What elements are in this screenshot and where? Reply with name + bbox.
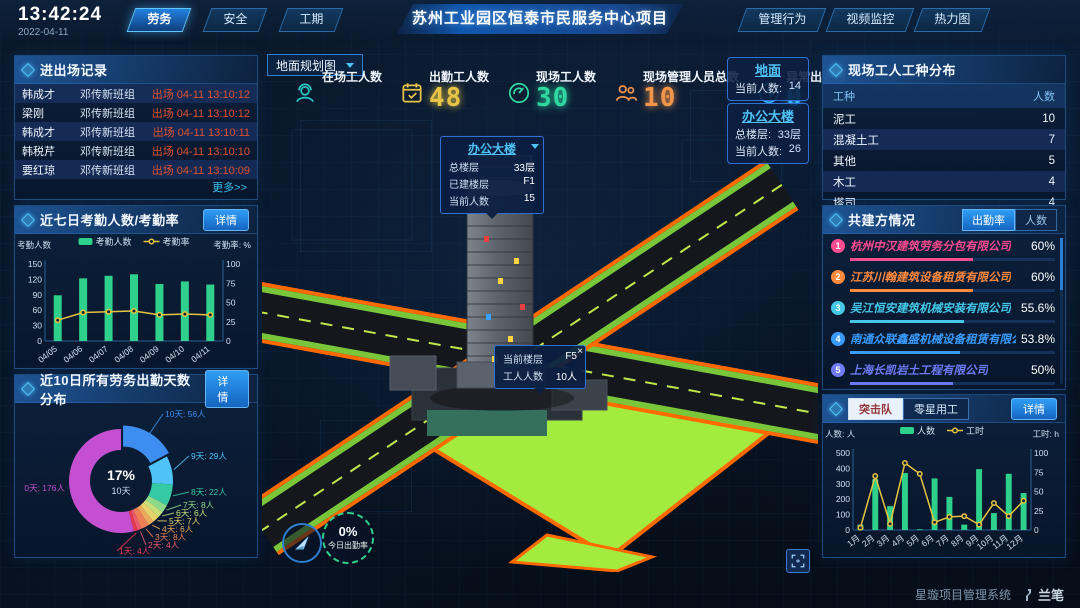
svg-text:9天: 29人: 9天: 29人: [191, 451, 227, 461]
svg-text:工时: h: 工时: h: [1033, 429, 1060, 439]
svg-text:60: 60: [33, 305, 43, 315]
floor-tooltip: × 当前楼层F5 工人人数10人: [494, 345, 586, 389]
panel-diamond-icon: [21, 381, 35, 395]
tab-management-behavior[interactable]: 管理行为: [738, 8, 827, 32]
svg-text:考勤人数: 考勤人数: [96, 236, 132, 247]
attendance-chart-panel: 近七日考勤人数/考勤率 详情 考勤人数考勤率: %考勤人数考勤率03060901…: [14, 205, 258, 369]
ground-info-panel: 地面 当前人数:14: [727, 57, 809, 101]
entry-exit-row: 要红琼邓传新班组出场 04-11 13:10:09: [15, 160, 257, 179]
svg-text:04/08: 04/08: [112, 344, 135, 365]
tab-assault-team[interactable]: 突击队: [848, 398, 903, 420]
svg-text:04/09: 04/09: [138, 344, 161, 365]
svg-text:500: 500: [836, 448, 850, 458]
top-bar: 13:42:24 2022-04-11 劳务 安全 工期 苏州工业园区恒泰市民服…: [0, 0, 1080, 44]
company-row: 4南通众联鑫盛机械设备租赁有限公司53.8%: [823, 327, 1065, 358]
site-3d-view[interactable]: 地面规划图 在场工人数 出勤工人数 48 现场工人数 30 现场管理: [262, 46, 818, 576]
panel-diamond-icon: [21, 212, 35, 226]
ground-link[interactable]: 地面: [735, 60, 801, 79]
svg-text:04/06: 04/06: [61, 344, 84, 365]
panel-diamond-icon: [829, 62, 843, 76]
svg-text:考勤人数: 考勤人数: [17, 240, 52, 250]
svg-text:30: 30: [33, 321, 43, 331]
svg-text:150: 150: [28, 259, 42, 269]
detail-button[interactable]: 详情: [203, 209, 249, 231]
attendance-bar-line-chart: 考勤人数考勤率: %考勤人数考勤率03060901201500255075100…: [15, 234, 253, 366]
company-row: 1杭州中汉建筑劳务分包有限公司60%: [823, 234, 1065, 265]
panel-title: 进出场记录: [40, 60, 108, 79]
table-row: 木工4: [823, 171, 1065, 192]
detail-button[interactable]: 详情: [1011, 398, 1057, 420]
close-icon[interactable]: ×: [577, 347, 583, 357]
office-building-info-panel: 办公大楼 总楼层:33层 当前人数:26: [727, 103, 809, 164]
svg-text:120: 120: [28, 274, 42, 284]
gauge-icon: [506, 80, 532, 106]
svg-text:50: 50: [1034, 487, 1044, 497]
panel-diamond-icon: [829, 212, 843, 226]
calendar-check-icon: [399, 80, 425, 106]
table-row: 泥工10: [823, 108, 1065, 129]
svg-text:04/11: 04/11: [189, 344, 212, 365]
worker-types-panel: 现场工人工种分布 工种 人数 泥工10 混凝土工7 其他5 木工4 塔司4: [822, 55, 1066, 200]
svg-text:10天: 56人: 10天: 56人: [165, 409, 206, 419]
svg-text:考勤率: 考勤率: [163, 236, 190, 247]
office-building-link[interactable]: 办公大楼: [735, 106, 801, 125]
svg-text:考勤率: %: 考勤率: %: [213, 240, 251, 250]
svg-text:25: 25: [1034, 506, 1044, 516]
svg-text:25: 25: [226, 317, 236, 327]
company-row: 3吴江恒安建筑机械安装有限公司55.6%: [823, 296, 1065, 327]
svg-text:10天: 10天: [111, 486, 130, 496]
stat-managers-total: 现场管理人员总数 10: [613, 68, 739, 111]
table-row: 其他5: [823, 150, 1065, 171]
partners-panel: 共建方情况 出勤率 人数 1杭州中汉建筑劳务分包有限公司60% 2江苏川翰建筑设…: [822, 205, 1066, 390]
stat-site-workers: 现场工人数 30: [506, 68, 596, 111]
fullscreen-icon[interactable]: [786, 549, 810, 573]
tab-casual-labor[interactable]: 零星用工: [903, 398, 969, 420]
svg-text:0天: 176人: 0天: 176人: [24, 483, 65, 493]
entry-exit-row: 梁刚邓传新班组出场 04-11 13:10:12: [15, 103, 257, 122]
tab-attendance-rate[interactable]: 出勤率: [962, 209, 1015, 231]
svg-text:100: 100: [226, 259, 240, 269]
panel-diamond-icon: [829, 401, 843, 415]
brand-logo: 兰笔: [1023, 585, 1064, 604]
company-row: 2江苏川翰建筑设备租赁有限公司60%: [823, 265, 1065, 296]
svg-text:04/10: 04/10: [163, 344, 186, 365]
svg-text:人数: 人数: [917, 425, 935, 436]
detail-button[interactable]: 详情: [205, 370, 249, 408]
panel-title: 近10日所有劳务出勤天数分布: [40, 370, 198, 408]
svg-text:400: 400: [836, 463, 850, 473]
attendance-days-donut-chart: 10天: 56人9天: 29人8天: 22人7天: 8人6天: 6人5天: 7人…: [15, 403, 253, 557]
svg-text:04/07: 04/07: [87, 344, 110, 365]
company-list: 1杭州中汉建筑劳务分包有限公司60% 2江苏川翰建筑设备租赁有限公司60% 3吴…: [823, 234, 1065, 390]
stat-onsite-workers: 在场工人数: [292, 68, 382, 111]
entry-exit-row: 韩税芹邓传新班组出场 04-11 13:10:10: [15, 141, 257, 160]
company-row: 6江苏洁治建筑安装工程有限公司35.4%: [823, 389, 1065, 390]
panel-title: 共建方情况: [848, 210, 916, 229]
worker-icon: [292, 80, 318, 106]
tab-safety[interactable]: 安全: [203, 8, 268, 32]
svg-text:50: 50: [226, 298, 236, 308]
svg-text:12月: 12月: [1004, 533, 1024, 552]
svg-text:工时: 工时: [966, 425, 984, 436]
svg-text:200: 200: [836, 494, 850, 504]
svg-text:17%: 17%: [107, 467, 136, 483]
navigation-arrow-icon: [291, 532, 313, 554]
tab-labor[interactable]: 劳务: [127, 8, 192, 32]
tab-schedule[interactable]: 工期: [279, 8, 344, 32]
date-text: 2022-04-11: [18, 27, 102, 38]
svg-text:300: 300: [836, 479, 850, 489]
tab-heatmap[interactable]: 热力图: [914, 8, 991, 32]
system-name: 星璇项目管理系统: [915, 586, 1011, 603]
panel-title: 现场工人工种分布: [848, 60, 956, 79]
page-title: 苏州工业园区恒泰市民服务中心项目: [397, 4, 683, 34]
building-tooltip-title[interactable]: 办公大楼: [468, 142, 516, 156]
squad-panel: 突击队 零星用工 详情 人数: 人工时: h人数工时01002003004005…: [822, 394, 1066, 558]
svg-text:04/05: 04/05: [36, 344, 59, 365]
svg-text:75: 75: [226, 278, 236, 288]
panel-diamond-icon: [21, 62, 35, 76]
svg-text:8天: 22人: 8天: 22人: [191, 487, 227, 497]
svg-text:100: 100: [836, 510, 850, 520]
stat-attending-workers: 出勤工人数 48: [399, 68, 489, 111]
svg-text:90: 90: [33, 290, 43, 300]
people-icon: [613, 80, 639, 106]
dashboard: 13:42:24 2022-04-11 劳务 安全 工期 苏州工业园区恒泰市民服…: [0, 0, 1080, 608]
company-row: 5上海长凯岩土工程有限公司50%: [823, 358, 1065, 389]
tab-video-monitor[interactable]: 视频监控: [826, 8, 915, 32]
svg-text:75: 75: [1034, 467, 1044, 477]
footer: 星璇项目管理系统 兰笔: [915, 585, 1064, 604]
svg-text:2天: 4人: 2天: 4人: [148, 540, 180, 550]
entry-exit-row: 韩成才邓传新班组出场 04-11 13:10:12: [15, 84, 257, 103]
entry-exit-row: 韩成才邓传新班组出场 04-11 13:10:11: [15, 122, 257, 141]
distribution-panel: 近10日所有劳务出勤天数分布 详情 10天: 56人9天: 29人8天: 22人…: [14, 374, 258, 558]
svg-text:人数: 人: 人数: 人: [825, 429, 856, 439]
chevron-down-icon[interactable]: [531, 144, 539, 149]
svg-text:100: 100: [1034, 448, 1048, 458]
table-header: 工种 人数: [823, 84, 1065, 108]
squad-bar-line-chart: 人数: 人工时: h人数工时01002003004005000255075100…: [823, 423, 1061, 555]
today-attendance-gauge: 0% 今日出勤率: [322, 512, 374, 564]
svg-text:0: 0: [845, 525, 850, 535]
svg-text:1天: 4人: 1天: 4人: [119, 546, 151, 556]
logo-icon: [1023, 588, 1035, 602]
more-link[interactable]: 更多>>: [212, 179, 247, 195]
time-text: 13:42:24: [18, 5, 102, 26]
entry-exit-list: 韩成才邓传新班组出场 04-11 13:10:12 梁刚邓传新班组出场 04-1…: [15, 84, 257, 179]
compass-control[interactable]: [282, 523, 322, 563]
scrollbar[interactable]: [1060, 238, 1063, 384]
svg-text:0: 0: [37, 336, 42, 346]
panel-title: 近七日考勤人数/考勤率: [40, 210, 179, 229]
svg-text:0: 0: [1034, 525, 1039, 535]
tab-headcount[interactable]: 人数: [1015, 209, 1057, 231]
building-tooltip: 办公大楼 总楼层33层 已建楼层F1 当前人数15: [440, 136, 544, 214]
svg-text:0: 0: [226, 336, 231, 346]
chevron-down-icon: [346, 63, 354, 68]
entry-exit-panel: 进出场记录 韩成才邓传新班组出场 04-11 13:10:12 梁刚邓传新班组出…: [14, 55, 258, 200]
clock: 13:42:24 2022-04-11: [18, 5, 102, 38]
table-row: 混凝土工7: [823, 129, 1065, 150]
